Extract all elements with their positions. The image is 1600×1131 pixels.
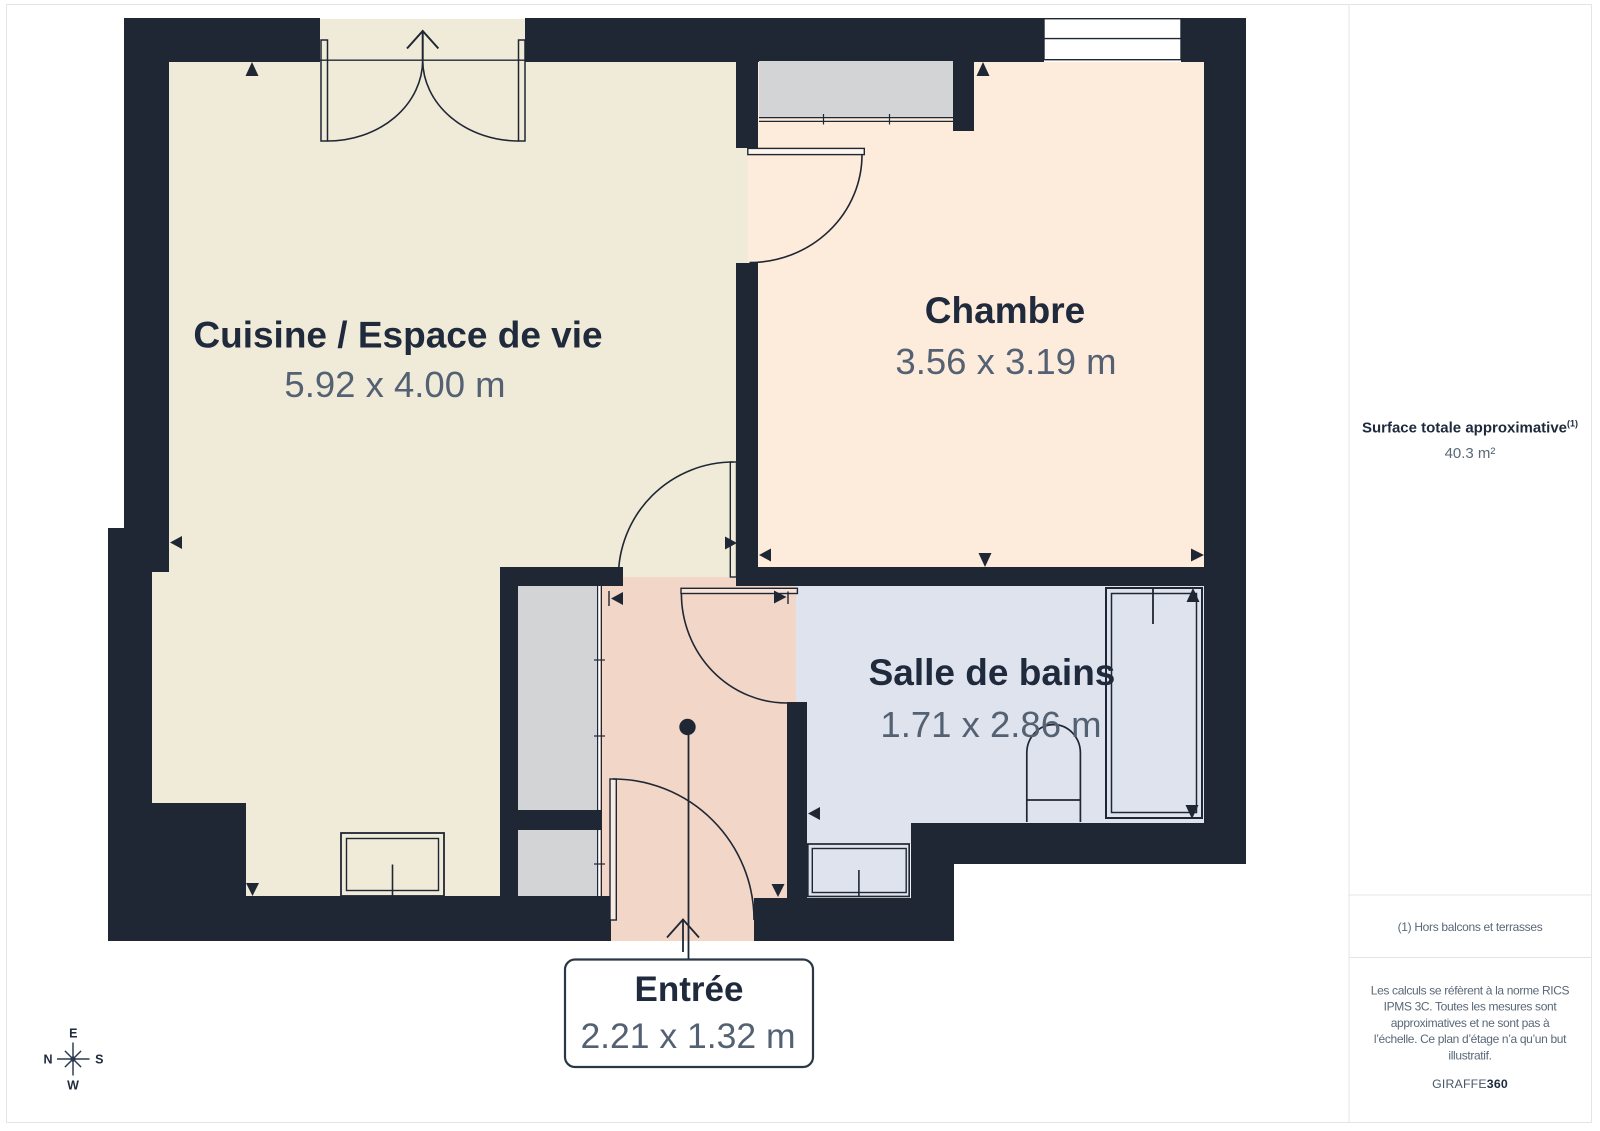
svg-text:(1) Hors balcons et terrasses: (1) Hors balcons et terrasses bbox=[1398, 920, 1543, 934]
svg-text:GIRAFFE360: GIRAFFE360 bbox=[1432, 1077, 1508, 1091]
svg-text:W: W bbox=[67, 1079, 79, 1093]
svg-text:IPMS 3C. Toutes les mesures so: IPMS 3C. Toutes les mesures sont bbox=[1384, 1000, 1558, 1014]
svg-text:40.3 m²: 40.3 m² bbox=[1445, 445, 1496, 462]
svg-text:S: S bbox=[95, 1053, 103, 1067]
svg-text:5.92 x 4.00 m: 5.92 x 4.00 m bbox=[284, 364, 505, 405]
svg-text:Surface totale approximative(1: Surface totale approximative(1) bbox=[1362, 419, 1578, 437]
svg-text:Chambre: Chambre bbox=[925, 290, 1085, 331]
svg-text:3.56 x 3.19 m: 3.56 x 3.19 m bbox=[895, 341, 1116, 382]
svg-text:Salle de bains: Salle de bains bbox=[869, 652, 1116, 693]
svg-text:Cuisine / Espace de vie: Cuisine / Espace de vie bbox=[193, 315, 602, 356]
svg-text:illustratif.: illustratif. bbox=[1448, 1048, 1491, 1062]
svg-text:N: N bbox=[43, 1053, 52, 1067]
svg-text:approximatives et ne sont pas: approximatives et ne sont pas à bbox=[1391, 1016, 1550, 1030]
svg-text:2.21 x 1.32 m: 2.21 x 1.32 m bbox=[580, 1016, 795, 1056]
svg-text:E: E bbox=[69, 1027, 77, 1041]
svg-text:l’échelle. Ce plan d’étage n’a: l’échelle. Ce plan d’étage n’a qu’un but bbox=[1374, 1032, 1567, 1046]
svg-text:1.71 x 2.86 m: 1.71 x 2.86 m bbox=[880, 704, 1101, 745]
svg-text:Les calculs se réfèrent à la n: Les calculs se réfèrent à la norme RICS bbox=[1371, 984, 1570, 998]
svg-text:Entrée: Entrée bbox=[635, 970, 744, 1009]
